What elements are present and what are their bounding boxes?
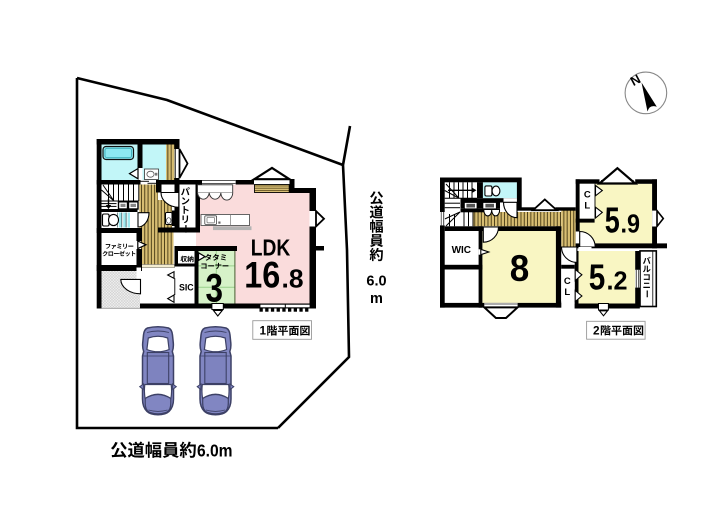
svg-text:5: 5 bbox=[605, 199, 620, 240]
svg-text:.9: .9 bbox=[621, 208, 641, 238]
svg-text:C: C bbox=[564, 276, 571, 287]
svg-text:WIC: WIC bbox=[452, 245, 471, 256]
svg-text:.2: .2 bbox=[607, 266, 628, 296]
svg-text:.8: .8 bbox=[282, 264, 304, 294]
svg-text:5: 5 bbox=[589, 257, 606, 298]
svg-text:m: m bbox=[370, 291, 383, 307]
svg-text:16: 16 bbox=[244, 255, 280, 296]
svg-text:1: 1 bbox=[260, 324, 267, 338]
svg-text:6.0m: 6.0m bbox=[197, 440, 233, 460]
svg-text:C: C bbox=[584, 190, 591, 201]
svg-text:8: 8 bbox=[510, 248, 530, 289]
svg-text:L: L bbox=[564, 287, 570, 298]
svg-text:L: L bbox=[584, 201, 590, 212]
svg-text:2: 2 bbox=[593, 323, 600, 337]
svg-text:3: 3 bbox=[205, 266, 223, 310]
svg-text:6.0: 6.0 bbox=[366, 274, 386, 290]
svg-text:SIC: SIC bbox=[179, 283, 194, 293]
